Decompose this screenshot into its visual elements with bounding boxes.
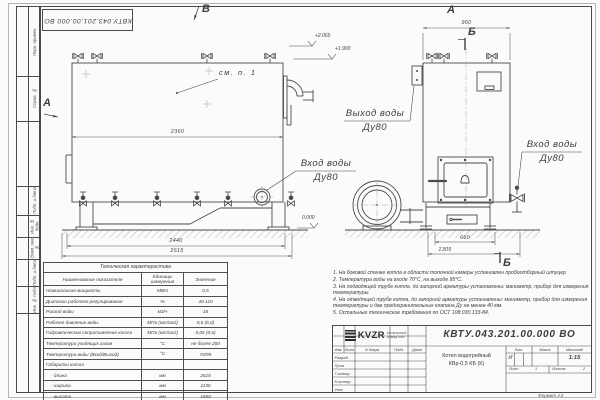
product-name: Котел водогрейный КВр-0,5 КБ (К) xyxy=(427,352,506,368)
row-prov: Пров. xyxy=(335,363,346,368)
list-value: 1 xyxy=(535,367,537,371)
table-row: Расход водым3/ч18 xyxy=(44,307,227,318)
table-row: Температура уходящих газов°Сне более 280 xyxy=(44,339,227,350)
title-doc-number: КВТУ.043.201.00.000 ВО xyxy=(428,329,591,344)
row-nkontr: Н.контр. xyxy=(335,379,352,384)
lit-header: Лит. xyxy=(506,348,532,352)
inverted-doc-stamp: КВТУ.043.201.00.000 ВО xyxy=(42,9,133,31)
product-name-line2: КВр-0,5 КБ (К) xyxy=(427,360,506,368)
section-label-b-bottom: Б xyxy=(503,257,511,269)
outlet-label-side: Выход воды xyxy=(342,108,408,119)
elevation-2065: +2.065 xyxy=(315,33,330,39)
table-row: - высотамм1850 xyxy=(44,391,227,400)
listov-label: Листов xyxy=(552,367,565,371)
massa-header: Масса xyxy=(532,348,558,352)
listov-value: 2 xyxy=(583,367,585,371)
side-view xyxy=(352,48,525,230)
col-list: Лист xyxy=(344,348,355,352)
col-docnum: N докум. xyxy=(355,348,390,352)
spec-table: Техническая характеристика Наименование … xyxy=(43,262,228,400)
col-izm: Изм. xyxy=(333,348,344,352)
inlet-label-side: Вход воды xyxy=(522,139,582,150)
row-tkontr: Т.контр. xyxy=(335,371,351,376)
valve-icon-side-inlet xyxy=(510,186,525,212)
dim-1305: 1305 xyxy=(430,247,460,253)
table-row: Габариты котла xyxy=(44,360,227,371)
lit-value: И xyxy=(506,355,515,361)
view-label-v: В xyxy=(202,3,210,15)
row-utv: Утв. xyxy=(335,387,344,392)
inverted-doc-number: КВТУ.043.201.00.000 ВО xyxy=(44,17,132,24)
elevation-0000: 0.000 xyxy=(302,215,315,221)
table-row: Номинальная мощностьМВт0,5 xyxy=(44,286,227,297)
spec-col-unit: Единицы измерения xyxy=(142,273,184,285)
note-4: 4. На отводящей трубе котла, до запорной… xyxy=(333,297,590,309)
masshtab-value: 1:15 xyxy=(558,355,591,361)
technical-notes: 1. На боковой стенке котла в области топ… xyxy=(333,270,590,316)
product-name-line1: Котел водогрейный xyxy=(427,352,506,360)
elevation-1900: +1.900 xyxy=(335,46,350,52)
note-2: 2. Температура воды на входе 70°С, на вы… xyxy=(333,277,590,283)
note-5: 5. Остальные технические требования по О… xyxy=(333,310,590,316)
fan-icon xyxy=(352,180,423,230)
table-row: - длинамм2615 xyxy=(44,370,227,381)
view-label-a: А xyxy=(447,4,455,16)
spec-col-value: Значение xyxy=(184,273,227,285)
section-label-b-top: Б xyxy=(468,26,476,38)
see-note-leader xyxy=(176,79,218,94)
elevation-marks xyxy=(289,41,336,228)
table-row: - ширинамм1130 xyxy=(44,381,227,392)
ground-front xyxy=(62,230,308,238)
spec-col-name: Наименование показателя xyxy=(44,273,142,285)
see-note-ref: см. п. 1 xyxy=(219,68,257,77)
section-arrow-label-a: А xyxy=(43,97,51,109)
list-label: Лист xyxy=(509,367,519,371)
dimensions-side xyxy=(423,28,520,257)
spec-table-header: Наименование показателя Единицы измерени… xyxy=(44,273,227,286)
format-note: Формат А3 xyxy=(538,393,563,398)
outlet-dn-side: Ду80 xyxy=(342,122,408,133)
dim-2615: 2615 xyxy=(62,248,292,254)
front-view xyxy=(66,63,313,230)
inlet-label-front: Вход воды xyxy=(296,158,356,169)
col-data: Дата xyxy=(408,348,426,352)
dim-660: 660 xyxy=(435,235,495,241)
valve-icons-side xyxy=(427,53,498,63)
table-row: Рабочее давление водыМПа (кгс/см2)0,6 (6… xyxy=(44,318,227,329)
table-row: Гидравлическое сопротивление котлаМПа (к… xyxy=(44,328,227,339)
title-block: КВТУ.043.201.00.000 ВО Изм. Лист N докум… xyxy=(332,325,592,393)
note-3: 3. На подводящей трубе котла, до запорно… xyxy=(333,284,590,296)
note-1: 1. На боковой стенке котла в области топ… xyxy=(333,270,590,276)
masshtab-header: Масштаб xyxy=(558,348,591,352)
dim-2360: 2360 xyxy=(72,129,283,135)
spec-table-title: Техническая характеристика xyxy=(44,263,227,273)
drawing-sheet: Перв. примен. Справ. № Подп. и дата Инв.… xyxy=(0,0,600,400)
table-row: Диапазон рабочего регулирования%40-110 xyxy=(44,297,227,308)
dim-2440: 2440 xyxy=(67,238,285,244)
col-podp: Подп. xyxy=(390,348,408,352)
inlet-dn-side: Ду80 xyxy=(522,153,582,164)
table-row: Температура воды (Вход/Выход)°С70/95 xyxy=(44,349,227,360)
inlet-dn-front: Ду80 xyxy=(296,172,356,183)
row-razrab: Разраб. xyxy=(335,355,349,360)
dim-960: 960 xyxy=(423,20,510,26)
label-leaders-side xyxy=(344,86,582,186)
